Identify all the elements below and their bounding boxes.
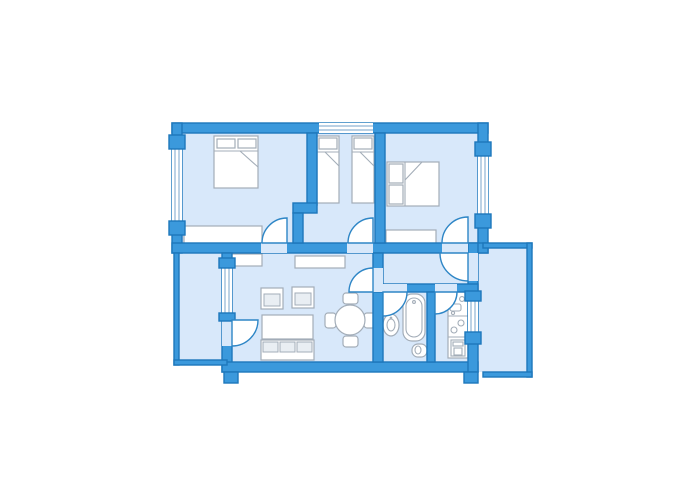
wall-middle: [172, 243, 488, 253]
toilet-icon: [412, 344, 427, 357]
floor-plan-svg: [0, 0, 700, 500]
wardrobe-icon: [184, 226, 262, 244]
sideboard-icon: [295, 256, 345, 268]
wall-bedroom-divider-2: [375, 133, 385, 243]
balcony-left-floor: [179, 253, 222, 360]
balcony-left-wall: [174, 253, 179, 365]
wall-bedroom-divider-1b: [293, 213, 303, 243]
wall-bedroom-divider-jog: [293, 203, 317, 213]
coffee-table-icon: [262, 315, 313, 339]
window-icon: [468, 300, 478, 333]
window-icon: [172, 148, 182, 222]
chair-icon: [343, 293, 358, 304]
balcony-right-wall: [527, 243, 532, 377]
balcony-right-wall-bottom: [483, 372, 532, 377]
balcony-left-wall-bottom: [174, 360, 227, 365]
balcony-right-wall-top: [483, 243, 532, 248]
balcony-right-floor: [478, 248, 527, 372]
double-bed-icon: [214, 136, 258, 188]
floor-plan-canvas: [0, 0, 700, 500]
single-bed-icon: [352, 136, 374, 203]
chair-icon: [343, 336, 358, 347]
window-icon: [478, 155, 488, 215]
wardrobe-icon: [386, 230, 436, 244]
window-icon: [319, 123, 373, 133]
single-bed-icon: [317, 136, 339, 203]
armchair-icon: [292, 287, 314, 308]
double-bed-icon: [387, 162, 439, 206]
window-icon: [222, 267, 232, 320]
armchair-icon: [261, 288, 283, 309]
wash-basin-icon: [383, 314, 399, 336]
sofa-icon: [261, 340, 314, 360]
wall-kitchen-left: [427, 292, 435, 362]
wall-bedroom-divider-1: [307, 133, 317, 205]
wall-stub-left: [224, 372, 238, 383]
bathtub-icon: [403, 294, 425, 341]
wall-stub-right: [464, 372, 478, 383]
chair-icon: [325, 313, 336, 328]
wall-bottom: [222, 362, 478, 372]
